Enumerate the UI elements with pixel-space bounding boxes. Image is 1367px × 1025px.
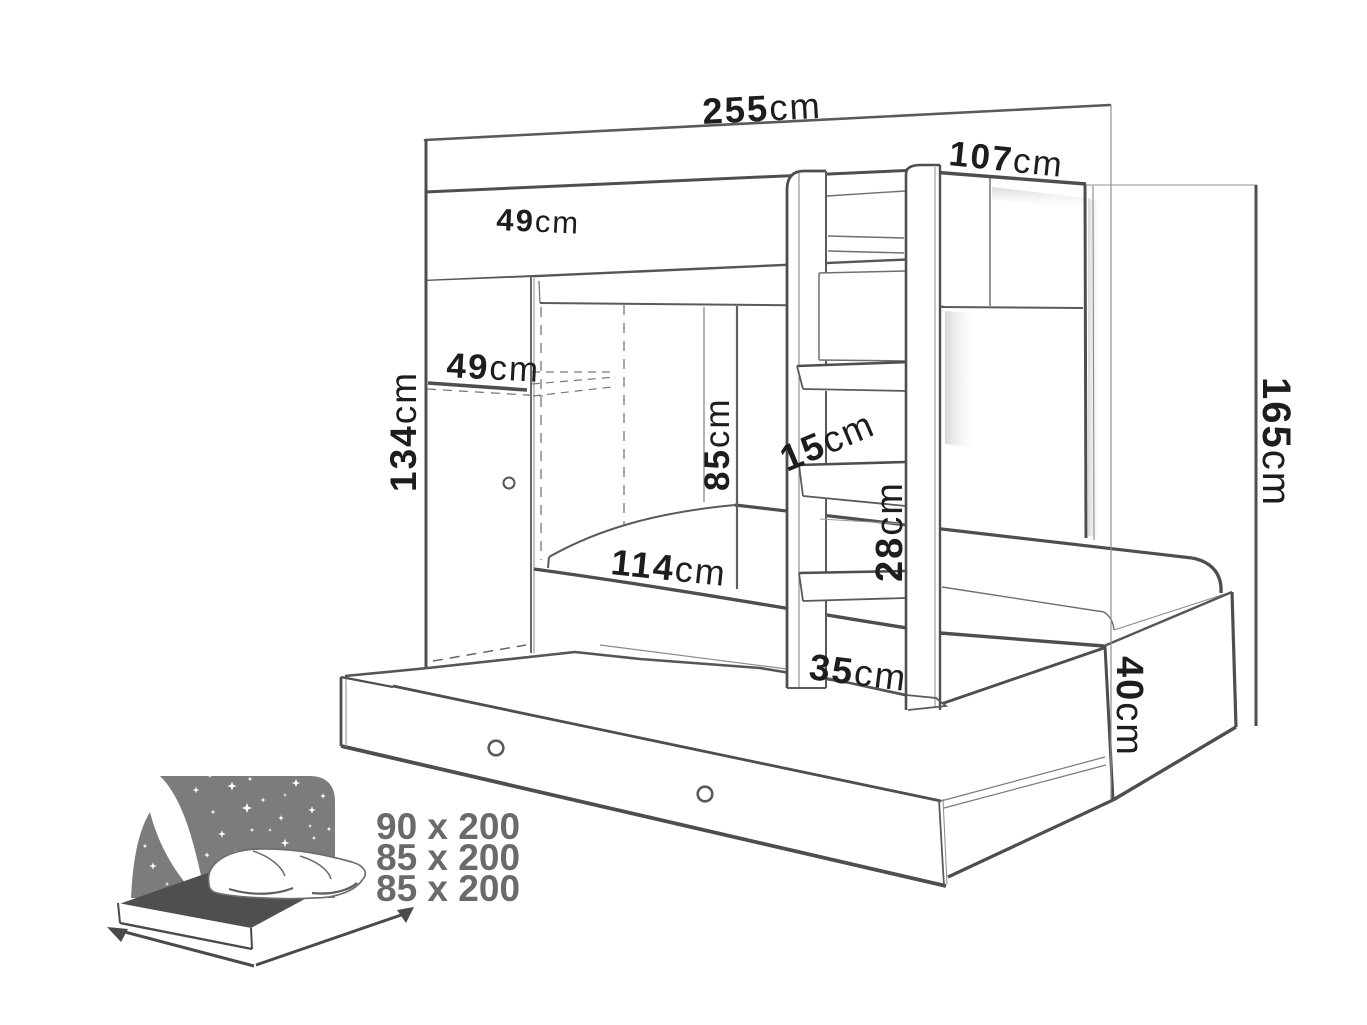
svg-text:49cm: 49cm — [446, 346, 542, 390]
svg-text:40cm: 40cm — [1108, 656, 1150, 757]
svg-text:28cm: 28cm — [869, 481, 911, 582]
svg-text:85 x 200: 85 x 200 — [376, 868, 520, 909]
svg-text:255cm: 255cm — [701, 85, 823, 132]
svg-text:134cm: 134cm — [383, 371, 424, 492]
svg-text:165cm: 165cm — [1254, 377, 1298, 507]
svg-text:85cm: 85cm — [698, 397, 737, 491]
svg-text:49cm: 49cm — [496, 202, 581, 241]
